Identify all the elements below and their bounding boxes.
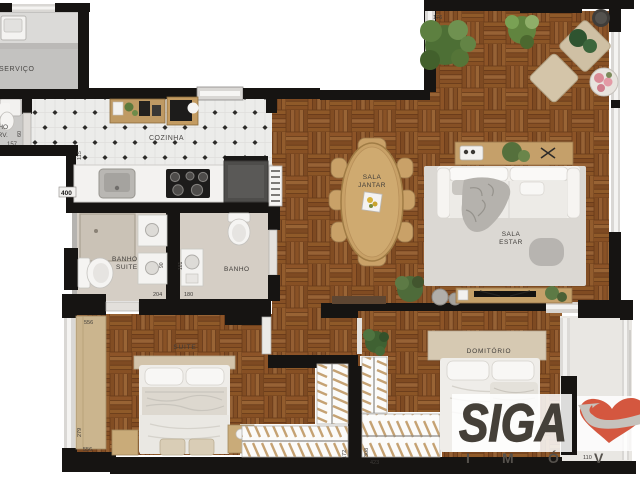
svg-text:110: 110	[583, 455, 592, 461]
svg-text:SUITE: SUITE	[116, 264, 138, 271]
svg-text:115: 115	[77, 151, 83, 160]
svg-text:ESTAR: ESTAR	[499, 239, 523, 246]
svg-text:176: 176	[433, 15, 442, 21]
svg-text:181: 181	[178, 261, 184, 270]
svg-text:180: 180	[184, 292, 193, 298]
svg-text:204: 204	[153, 292, 162, 298]
svg-text:SALA: SALA	[502, 231, 521, 238]
svg-text:I: I	[466, 450, 470, 466]
svg-text:M: M	[502, 450, 514, 466]
svg-text:COZINHA: COZINHA	[149, 135, 184, 142]
svg-text:400: 400	[61, 190, 72, 197]
svg-text:JANTAR: JANTAR	[358, 182, 386, 189]
svg-text:SERVIÇO: SERVIÇO	[0, 66, 35, 73]
svg-text:556: 556	[84, 320, 93, 326]
svg-text:Ó: Ó	[548, 449, 559, 466]
svg-text:60: 60	[17, 131, 23, 137]
svg-text:BANHO: BANHO	[0, 124, 8, 131]
svg-text:556: 556	[83, 447, 92, 453]
svg-text:SALA: SALA	[363, 174, 382, 181]
svg-text:DOMITÓRIO: DOMITÓRIO	[467, 346, 512, 355]
svg-text:279: 279	[77, 428, 83, 437]
svg-text:308: 308	[364, 448, 370, 457]
svg-text:423: 423	[370, 460, 379, 466]
svg-text:SUITE: SUITE	[173, 344, 196, 351]
svg-text:BANHO: BANHO	[112, 256, 138, 263]
svg-text:SIGA: SIGA	[459, 394, 567, 453]
svg-text:V: V	[594, 450, 604, 466]
svg-text:SERV.: SERV.	[0, 132, 8, 139]
svg-text:BANHO: BANHO	[224, 266, 250, 273]
svg-text:172: 172	[342, 450, 348, 459]
svg-text:90: 90	[159, 262, 165, 268]
